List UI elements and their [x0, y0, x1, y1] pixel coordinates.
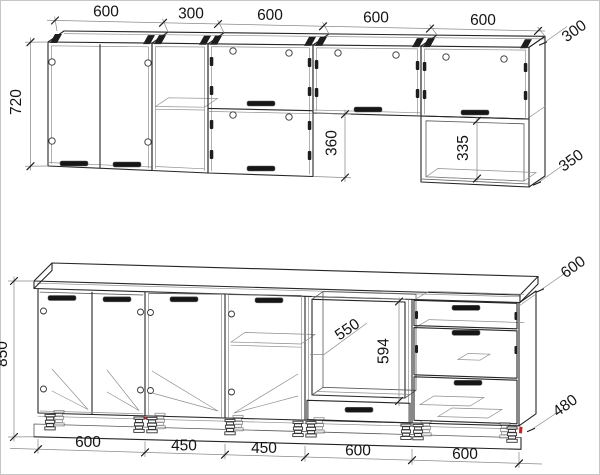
hinge-icon: [138, 309, 144, 315]
dim-flip-section-height: 360: [324, 130, 341, 156]
dimension-worktop-depth: 600: [537, 253, 590, 292]
door-handle: [247, 166, 275, 171]
dimension-upper-height: 720: [8, 38, 48, 171]
dimension-niche-height: 335: [455, 117, 481, 183]
base-right-side-panel: [519, 291, 536, 426]
dim-upper-width-4: 600: [363, 9, 389, 26]
dim-upper-width-2: 300: [178, 5, 204, 22]
dim-lower-width-5: 600: [452, 446, 478, 463]
dim-lower-height: 850: [0, 341, 11, 367]
base-cabinet-drawers: [414, 291, 536, 426]
door-handle: [60, 161, 88, 166]
drawer-handle: [345, 407, 373, 412]
dim-upper-width-3: 600: [257, 7, 283, 24]
hinge-icon: [443, 54, 449, 60]
door-handle: [48, 296, 76, 301]
wall-cabinet-flip-door: [313, 45, 421, 116]
base-cabinets-row: 594 550: [0, 253, 589, 468]
hinge-icon: [148, 310, 154, 316]
hinge-icon: [229, 311, 235, 317]
hinge-icon: [145, 139, 151, 145]
door-handle: [247, 101, 275, 106]
dim-lower-width-3: 450: [251, 440, 277, 457]
wall-cabinet-flip-door-with-niche: [421, 46, 536, 187]
base-cabinet-double-door: [40, 292, 144, 414]
dim-upper-width-5: 600: [470, 12, 496, 29]
hinge-icon: [501, 56, 507, 62]
red-marker: [519, 427, 523, 434]
drawer-handle: [454, 380, 482, 385]
dim-upper-depth: 300: [559, 17, 590, 46]
lift-mechanism-icons: [315, 60, 420, 98]
dim-lower-width-1: 600: [75, 434, 101, 451]
wall-cabinets-row: 600 300 600 600 600 720 360 335: [8, 4, 590, 188]
hinge-icon: [145, 60, 151, 66]
base-cabinet-single-door: [148, 293, 222, 418]
hinge-icon: [41, 308, 47, 314]
technical-drawing: 600 300 600 600 600 720 360 335: [0, 0, 600, 475]
door-handle: [170, 297, 198, 302]
dim-lower-width-4: 600: [345, 443, 371, 460]
dimension-lower-height: 850: [0, 277, 34, 442]
wall-cabinet-two-flip-doors: [208, 44, 313, 177]
dimension-lower-widths: 600 450 450 600 600: [10, 434, 542, 468]
base-cabinet-door-with-shelf: [229, 295, 316, 419]
hinge-icon: [148, 388, 154, 394]
dim-shelf-depth: 350: [556, 146, 587, 175]
hinge-icon: [49, 138, 55, 144]
hinge-icon: [229, 389, 235, 395]
dim-upper-width-1: 600: [93, 4, 119, 21]
dim-oven-niche-height: 594: [376, 338, 393, 364]
door-handle: [113, 162, 141, 167]
door-handle: [354, 107, 382, 112]
dimension-upper-depth: 300: [540, 17, 591, 46]
dimension-flip-section-height: 360: [313, 110, 351, 182]
drawer-handle: [452, 305, 480, 310]
image-border: [1, 1, 600, 475]
shelf: [231, 333, 315, 348]
hinge-icon: [41, 386, 47, 392]
dimension-oven-niche-width: 550: [310, 315, 367, 354]
base-cabinet-oven-housing: 594 550: [307, 292, 416, 424]
dim-lower-width-2: 450: [171, 438, 197, 455]
dim-worktop-depth: 600: [558, 253, 589, 282]
dim-niche-height: 335: [455, 135, 472, 161]
dimension-shelf-depth: 350: [534, 146, 588, 185]
wall-cabinet-double-door: [48, 42, 152, 171]
hinge-icon: [286, 114, 292, 120]
door-handle: [255, 298, 283, 303]
hinge-icon: [230, 112, 236, 118]
base-carcass: [38, 289, 519, 429]
hinge-icon: [393, 52, 399, 58]
drawer-handle: [452, 330, 480, 335]
dim-plinth-depth: 480: [550, 391, 581, 420]
drawing-canvas: 600 300 600 600 600 720 360 335: [0, 0, 600, 475]
hinge-icon: [49, 59, 55, 65]
hinge-icon: [286, 50, 292, 56]
wall-right-side-panel: [529, 36, 545, 187]
dim-oven-niche-width: 550: [332, 315, 363, 344]
hinge-icon: [230, 48, 236, 54]
dim-upper-height: 720: [8, 89, 25, 115]
door-handle: [103, 297, 131, 302]
door-handle: [461, 110, 489, 115]
lift-mechanism-icons: [423, 62, 528, 100]
hinge-icon: [335, 50, 341, 56]
hinge-icon: [138, 387, 144, 393]
